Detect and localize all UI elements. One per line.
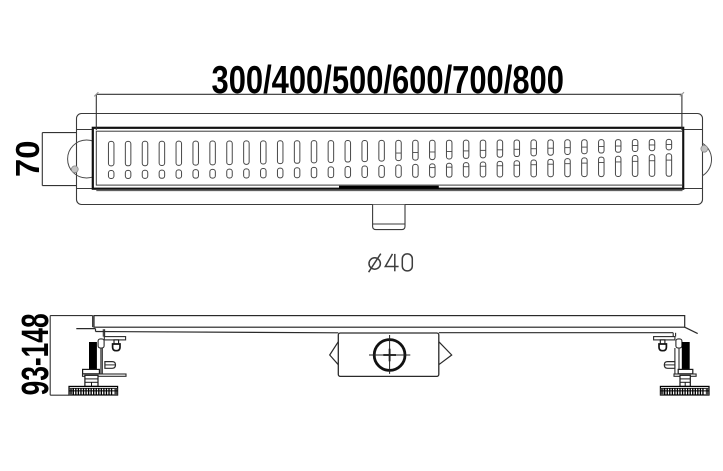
svg-text:70: 70 (10, 141, 47, 178)
svg-text:93-148: 93-148 (14, 313, 57, 395)
svg-text:300/400/500/600/700/800: 300/400/500/600/700/800 (212, 59, 564, 102)
